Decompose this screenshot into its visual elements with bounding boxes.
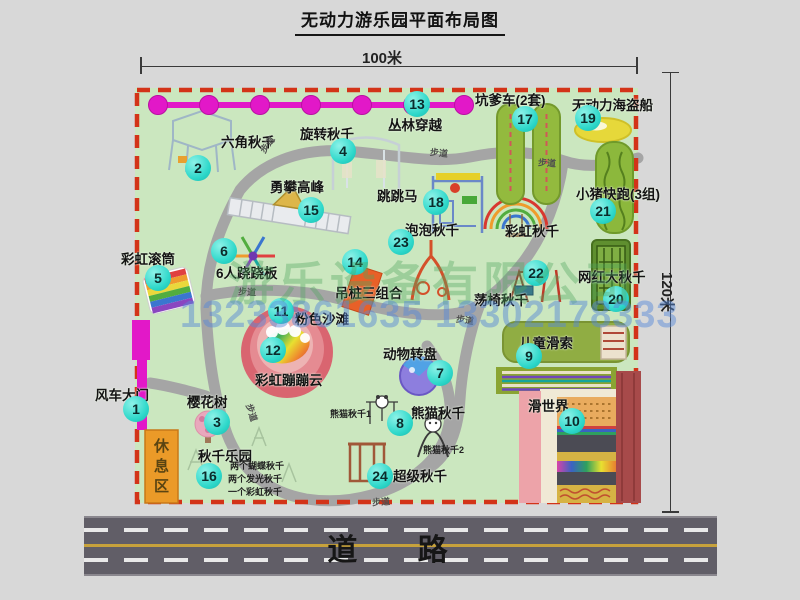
- poi-marker-16: 16: [196, 463, 222, 489]
- poi-marker-9: 9: [516, 343, 542, 369]
- poi-marker-14: 14: [342, 249, 368, 275]
- poi-marker-18: 18: [423, 189, 449, 215]
- poi-marker-3: 3: [204, 409, 230, 435]
- road: 道 路: [84, 516, 717, 576]
- poi-marker-19: 19: [575, 105, 601, 131]
- road-label: 道 路: [84, 525, 717, 569]
- poi-marker-21: 21: [590, 198, 616, 224]
- poi-marker-6: 6: [211, 238, 237, 264]
- poi-marker-4: 4: [330, 138, 356, 164]
- poi-marker-23: 23: [388, 229, 414, 255]
- poi-marker-15: 15: [298, 197, 324, 223]
- markers-layer: 123456789101112131415161718192021222324: [0, 0, 800, 600]
- poi-marker-10: 10: [559, 408, 585, 434]
- poi-marker-12: 12: [260, 337, 286, 363]
- poi-marker-22: 22: [523, 260, 549, 286]
- playground-plan-figure: 无动力游乐园平面布局图 100米 120米: [0, 0, 800, 600]
- poi-marker-24: 24: [367, 463, 393, 489]
- poi-marker-17: 17: [512, 106, 538, 132]
- poi-marker-11: 11: [268, 298, 294, 324]
- poi-marker-5: 5: [145, 265, 171, 291]
- poi-marker-8: 8: [387, 410, 413, 436]
- poi-marker-13: 13: [404, 91, 430, 117]
- poi-marker-2: 2: [185, 155, 211, 181]
- poi-marker-7: 7: [427, 360, 453, 386]
- poi-marker-1: 1: [123, 396, 149, 422]
- poi-marker-20: 20: [603, 286, 629, 312]
